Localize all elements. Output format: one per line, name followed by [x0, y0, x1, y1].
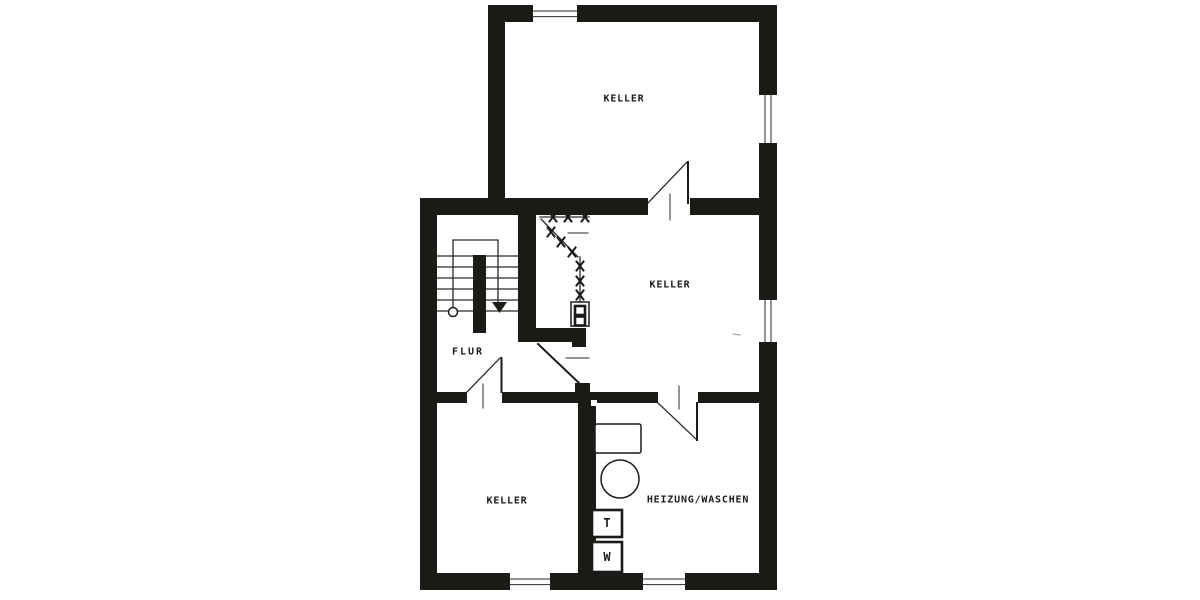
wall-joint-mark — [591, 400, 597, 406]
flue-path — [540, 217, 589, 302]
staircase — [437, 240, 518, 333]
room-label-heizung-waschen: HEIZUNG/WASCHEN — [647, 495, 749, 506]
door-swing — [648, 162, 687, 203]
wall-nook-south — [518, 328, 586, 342]
wall-bottom — [420, 573, 777, 590]
door-leaf — [538, 344, 579, 383]
wall-right — [759, 5, 777, 590]
appliance-label-t: T — [603, 516, 610, 530]
wall-floor-left-segment — [437, 392, 467, 403]
boiler-table-symbol — [595, 424, 641, 453]
door-bottom-keller — [467, 358, 502, 408]
flue-x-marks — [548, 213, 589, 300]
window-top — [533, 5, 577, 22]
stair-newel-post — [449, 308, 458, 317]
wall-middle-right-segment — [690, 198, 777, 215]
wall-nook-step — [572, 340, 586, 347]
room-label-keller-top: KELLER — [604, 94, 645, 105]
wall-floor-right-segment — [698, 392, 760, 403]
basement-floorplan-drawing — [0, 0, 1200, 600]
window-bottom-right — [643, 573, 685, 590]
door-heizung-waschen — [658, 386, 697, 440]
wall-middle-left-segment — [420, 198, 648, 215]
window-bottom-left — [510, 573, 550, 590]
appliance-label-w: W — [603, 550, 610, 564]
dimension-ticks — [566, 233, 740, 358]
floorplan-canvas: KELLER KELLER KELLER FLUR HEIZUNG/WASCHE… — [0, 0, 1200, 600]
room-label-keller-bottom: KELLER — [487, 496, 528, 507]
chimney-symbol — [571, 302, 589, 326]
stair-spine-wall — [473, 255, 486, 333]
wall-stairwell — [518, 215, 536, 342]
boiler-tank-symbol — [601, 460, 639, 498]
door-top-keller — [648, 162, 688, 220]
wall-upper-left — [488, 5, 505, 215]
door-flur-to-middle-keller — [538, 344, 579, 383]
scan-speck — [733, 334, 740, 335]
window-right-middle — [759, 300, 777, 342]
flue-line — [540, 213, 589, 327]
room-label-flur: FLUR — [452, 347, 484, 358]
room-label-keller-middle: KELLER — [650, 280, 691, 291]
heizung-fixtures — [592, 424, 641, 572]
door-swing — [658, 403, 696, 439]
wall-top — [488, 5, 777, 22]
wall-lower-left — [420, 198, 437, 590]
window-right-upper — [759, 95, 777, 143]
